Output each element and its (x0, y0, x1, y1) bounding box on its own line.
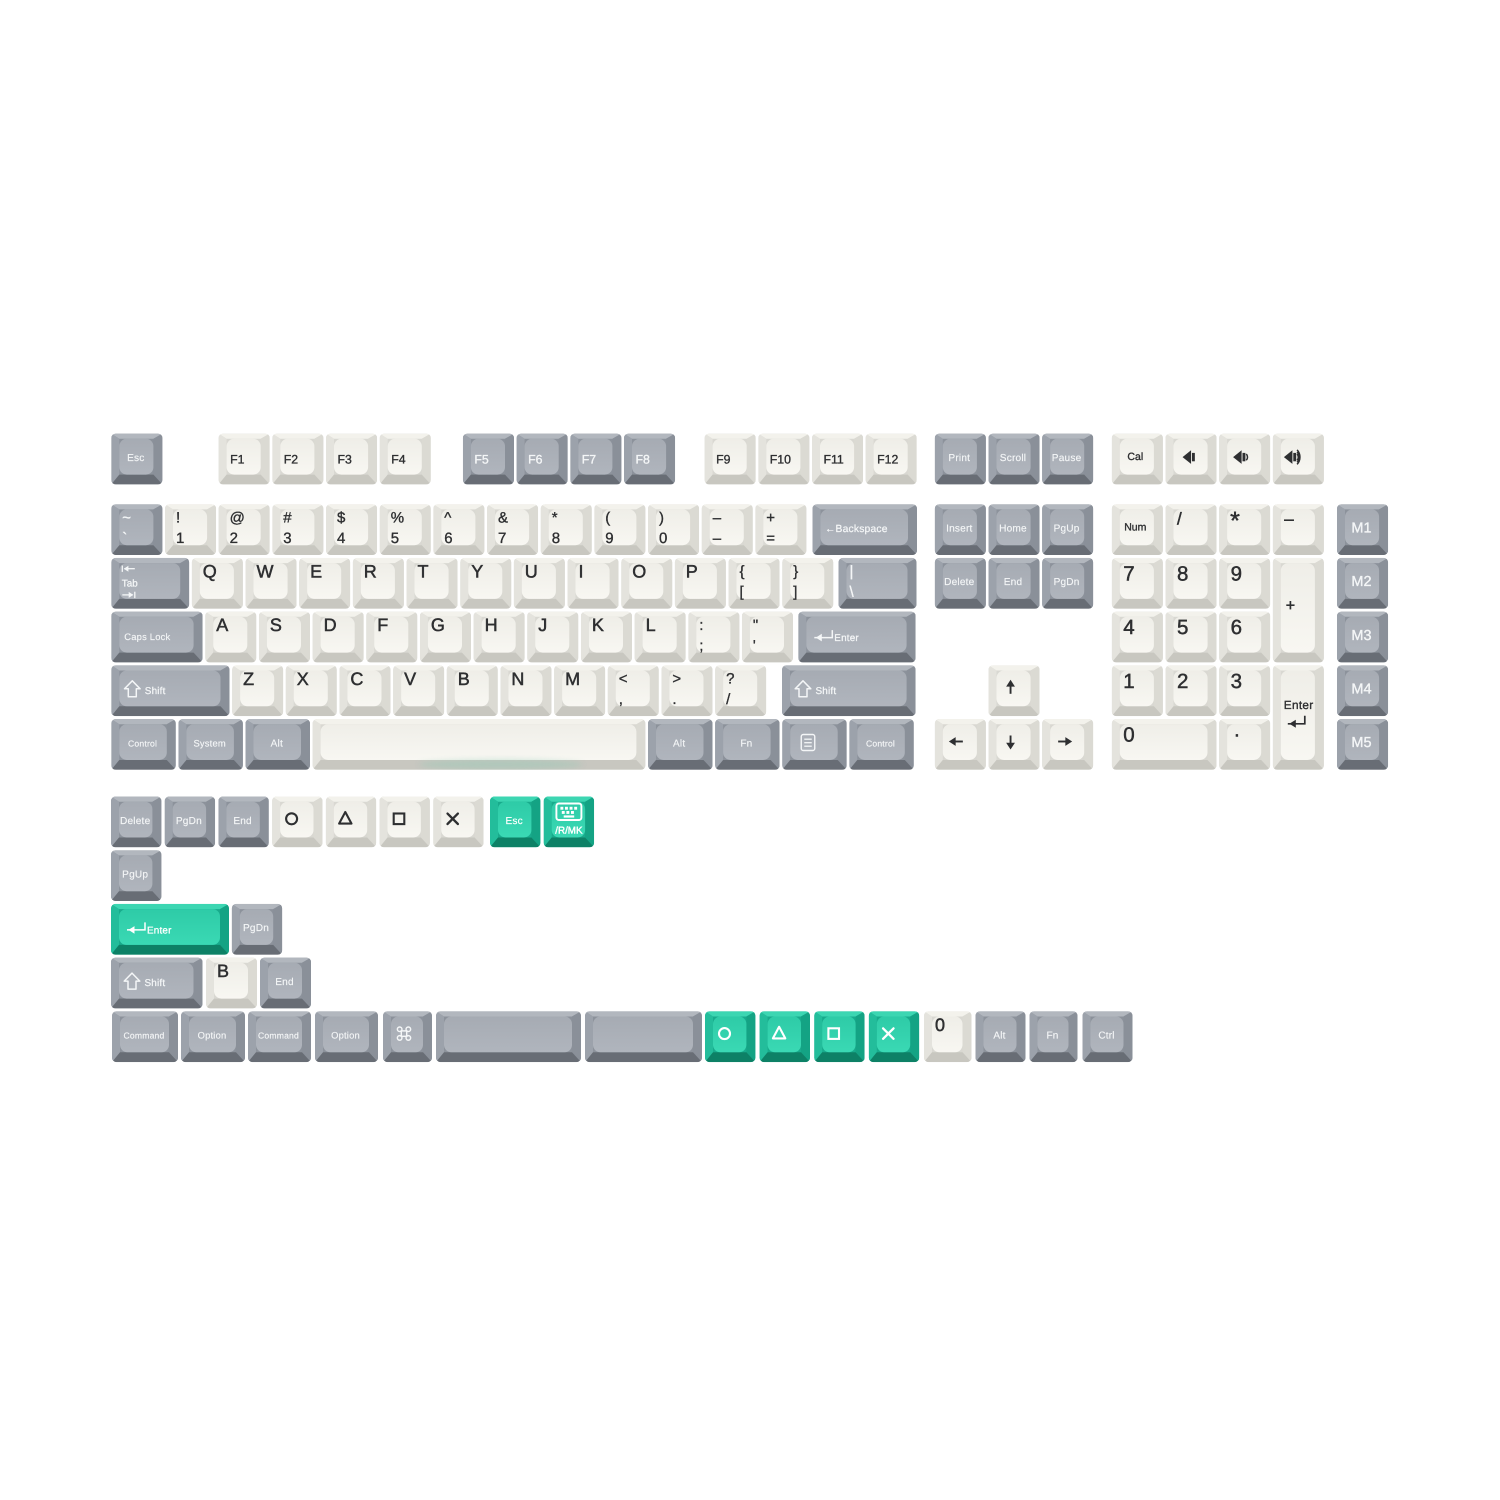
svg-text:F: F (377, 615, 388, 635)
svg-text:?: ? (726, 671, 734, 688)
svg-text:M4: M4 (1351, 682, 1371, 698)
svg-text:F6: F6 (528, 452, 543, 466)
svg-text:2: 2 (1177, 670, 1188, 693)
svg-text:9: 9 (605, 530, 613, 547)
svg-text:End: End (233, 816, 252, 827)
svg-text:*: * (552, 510, 558, 527)
svg-text:H: H (485, 615, 498, 635)
svg-text:3: 3 (283, 530, 291, 547)
svg-text:M2: M2 (1351, 574, 1371, 590)
svg-text:Fn: Fn (740, 738, 752, 749)
svg-text:5: 5 (1177, 616, 1188, 639)
svg-text:): ) (659, 510, 664, 527)
svg-text:–: – (1284, 510, 1294, 529)
svg-text:Command: Command (258, 1031, 299, 1041)
svg-text:F10: F10 (770, 452, 791, 466)
svg-text:Alt: Alt (271, 738, 283, 749)
svg-text:M3: M3 (1351, 628, 1371, 644)
svg-text:2: 2 (230, 530, 238, 547)
svg-text:I: I (579, 561, 584, 581)
svg-text:Y: Y (471, 561, 483, 581)
svg-text:4: 4 (1123, 616, 1134, 639)
svg-text:O: O (632, 561, 646, 581)
svg-text:8: 8 (1177, 562, 1188, 585)
svg-text:Esc: Esc (127, 453, 144, 464)
svg-text:Cal: Cal (1127, 451, 1143, 463)
svg-text:F3: F3 (338, 452, 353, 466)
svg-text:1: 1 (1123, 670, 1134, 693)
svg-text:C: C (350, 669, 363, 689)
svg-text:%: % (391, 510, 404, 527)
svg-text:Delete: Delete (120, 816, 151, 827)
svg-text:F5: F5 (474, 452, 489, 466)
svg-text:Shift: Shift (816, 686, 837, 697)
svg-text:Scroll: Scroll (1000, 453, 1026, 464)
svg-text:0: 0 (935, 1015, 945, 1035)
svg-text:Fn: Fn (1046, 1031, 1058, 1042)
svg-text:8: 8 (552, 530, 560, 547)
svg-text:`: ` (122, 530, 127, 547)
svg-text:T: T (418, 561, 429, 581)
svg-text:F9: F9 (716, 452, 731, 466)
svg-text:M1: M1 (1351, 520, 1371, 536)
svg-text:A: A (216, 615, 228, 635)
svg-text:M: M (565, 669, 580, 689)
svg-text:!: ! (176, 510, 180, 527)
svg-text:0: 0 (1123, 724, 1134, 747)
svg-text:Shift: Shift (145, 978, 166, 989)
svg-text:K: K (592, 615, 604, 635)
svg-text:~: ~ (122, 510, 131, 527)
svg-text:G: G (431, 615, 445, 635)
svg-text:*: * (1230, 507, 1240, 535)
svg-text:Esc: Esc (505, 816, 522, 827)
svg-text:W: W (257, 561, 274, 581)
svg-text:}: } (793, 563, 798, 580)
svg-text:B: B (217, 961, 229, 981)
svg-text:Print: Print (948, 453, 970, 464)
svg-text:F8: F8 (636, 452, 651, 466)
svg-text::: : (699, 617, 703, 634)
svg-text:0: 0 (659, 530, 667, 547)
svg-text:Caps Lock: Caps Lock (124, 631, 170, 642)
svg-text:Enter: Enter (1284, 698, 1314, 712)
svg-text:F12: F12 (877, 452, 898, 466)
svg-text:–: – (713, 530, 722, 547)
svg-text:": " (753, 617, 758, 634)
svg-text:<: < (619, 671, 628, 688)
svg-text:F2: F2 (284, 452, 299, 466)
svg-text:F1: F1 (230, 452, 245, 466)
svg-text:7: 7 (498, 530, 506, 547)
svg-text:|: | (850, 563, 854, 580)
svg-text:Option: Option (198, 1030, 227, 1041)
svg-text:.: . (1234, 720, 1240, 742)
svg-text:Q: Q (203, 561, 217, 581)
svg-text:Shift: Shift (145, 686, 166, 697)
svg-text:F4: F4 (391, 452, 406, 466)
svg-text:(: ( (605, 510, 610, 527)
svg-text:Tab: Tab (122, 578, 138, 589)
svg-text:P: P (686, 561, 698, 581)
svg-text:PgUp: PgUp (122, 870, 148, 881)
svg-text:4: 4 (337, 530, 345, 547)
svg-text:Pause: Pause (1052, 453, 1082, 464)
svg-text:PgDn: PgDn (1054, 577, 1080, 588)
svg-text:Control: Control (128, 738, 157, 748)
svg-text:E: E (310, 561, 322, 581)
svg-text:N: N (511, 669, 524, 689)
svg-text:$: $ (337, 510, 346, 527)
svg-text:Insert: Insert (946, 524, 972, 535)
svg-text:Delete: Delete (944, 577, 975, 588)
svg-text:L: L (646, 615, 656, 635)
svg-text:U: U (525, 561, 538, 581)
svg-text:F11: F11 (824, 452, 844, 466)
svg-text:{: { (740, 563, 745, 580)
svg-text:End: End (1004, 577, 1023, 588)
svg-text:PgDn: PgDn (243, 923, 269, 934)
svg-text:/R/MK: /R/MK (555, 825, 583, 836)
svg-text:': ' (753, 637, 756, 654)
svg-text:End: End (275, 977, 294, 988)
svg-text:]: ] (793, 584, 797, 601)
svg-text:>: > (672, 671, 681, 688)
svg-text:Control: Control (866, 738, 895, 748)
svg-text:5: 5 (391, 530, 399, 547)
svg-text:Z: Z (243, 669, 254, 689)
svg-text:Ctrl: Ctrl (1098, 1031, 1114, 1042)
svg-text:7: 7 (1123, 562, 1134, 585)
svg-text:Home: Home (999, 524, 1027, 535)
svg-text:=: = (766, 530, 775, 547)
svg-text:Enter: Enter (147, 925, 172, 936)
svg-text:.: . (672, 691, 676, 708)
svg-text:3: 3 (1231, 670, 1242, 693)
svg-text:←Backspace: ←Backspace (825, 524, 888, 535)
svg-text:PgDn: PgDn (176, 816, 202, 827)
svg-text:Enter: Enter (834, 633, 859, 644)
svg-text:1: 1 (176, 530, 184, 547)
svg-text:+: + (1286, 597, 1295, 614)
svg-text:;: ; (699, 637, 703, 654)
svg-text:#: # (283, 510, 292, 527)
svg-text:/: / (1177, 510, 1182, 529)
svg-text:System: System (193, 737, 225, 748)
svg-text:R: R (364, 561, 377, 581)
svg-text:D: D (324, 615, 337, 635)
svg-text:Num: Num (1124, 522, 1146, 534)
svg-text:Alt: Alt (993, 1031, 1005, 1042)
svg-text:PgUp: PgUp (1054, 524, 1080, 535)
svg-text:Alt: Alt (673, 738, 685, 749)
svg-text:M5: M5 (1351, 735, 1371, 751)
svg-text:9: 9 (1231, 562, 1242, 585)
svg-text:X: X (297, 669, 309, 689)
svg-text:@: @ (230, 510, 245, 527)
svg-text:6: 6 (1231, 616, 1242, 639)
svg-text:B: B (458, 669, 470, 689)
svg-text:Option: Option (331, 1030, 360, 1041)
svg-text:J: J (538, 615, 547, 635)
svg-text:6: 6 (444, 530, 452, 547)
svg-text:+: + (766, 510, 775, 527)
svg-text:F7: F7 (582, 452, 597, 466)
svg-text:^: ^ (444, 510, 451, 527)
svg-text:,: , (619, 691, 623, 708)
svg-text:–: – (713, 510, 722, 527)
svg-text:S: S (270, 615, 282, 635)
svg-text:Command: Command (123, 1031, 164, 1041)
svg-text:V: V (404, 669, 416, 689)
svg-text:&: & (498, 510, 508, 527)
